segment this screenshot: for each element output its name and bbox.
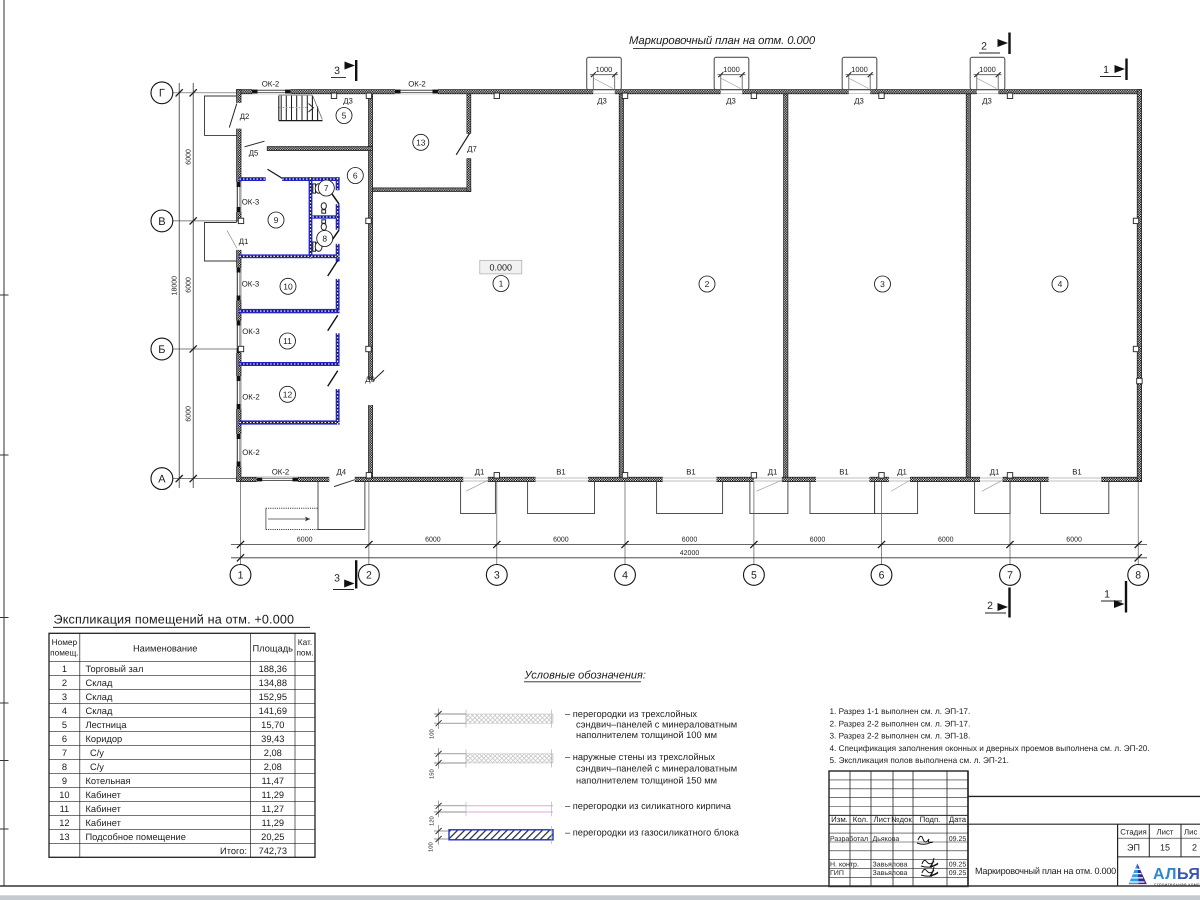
svg-text:1000: 1000	[596, 65, 613, 74]
svg-text:2,08: 2,08	[264, 748, 282, 758]
svg-text:5. Экспликация полов выполнена: 5. Экспликация полов выполнена см. л. ЭП…	[830, 756, 1009, 765]
svg-text:13: 13	[59, 832, 69, 842]
svg-text:Д3: Д3	[343, 97, 353, 106]
svg-text:9: 9	[274, 215, 279, 225]
svg-text:Кабинет: Кабинет	[86, 804, 122, 814]
svg-text:1. Разрез 1-1 выполнен см. л.: 1. Разрез 1-1 выполнен см. л. ЭП-17.	[830, 707, 971, 716]
svg-text:Изм.: Изм.	[831, 815, 848, 824]
svg-text:134,88: 134,88	[259, 678, 287, 688]
svg-text:Д3: Д3	[854, 97, 864, 106]
svg-text:141,69: 141,69	[259, 706, 287, 716]
svg-text:1: 1	[1104, 589, 1110, 601]
svg-text:100: 100	[428, 842, 435, 852]
svg-text:наполнителем толщиной 150 мм: наполнителем толщиной 150 мм	[576, 775, 717, 785]
svg-text:Разработал: Разработал	[830, 835, 868, 843]
svg-text:1000: 1000	[723, 65, 740, 74]
svg-text:6000: 6000	[1066, 537, 1082, 544]
svg-text:Завьялова: Завьялова	[873, 861, 908, 868]
svg-text:11,47: 11,47	[262, 776, 285, 786]
svg-text:– перегородки из газосиликатно: – перегородки из газосиликатного блока	[565, 828, 740, 838]
svg-text:6000: 6000	[810, 537, 826, 544]
svg-text:ОК-2: ОК-2	[272, 468, 290, 477]
svg-text:сэндвич–панелей с минераловатн: сэндвич–панелей с минераловатным	[576, 719, 737, 729]
svg-text:помещ.: помещ.	[50, 648, 79, 658]
svg-text:Торговый зал: Торговый зал	[86, 664, 144, 674]
svg-text:09.25: 09.25	[949, 836, 967, 843]
svg-text:– перегородки из силикатного к: – перегородки из силикатного кирпича	[565, 801, 732, 811]
svg-text:2: 2	[366, 570, 372, 582]
svg-text:ОК-3: ОК-3	[242, 280, 260, 289]
svg-text:1: 1	[238, 570, 244, 582]
svg-text:ГИП: ГИП	[830, 870, 844, 877]
svg-text:Кат.: Кат.	[298, 637, 312, 647]
svg-text:6: 6	[353, 171, 358, 181]
svg-text:09.25: 09.25	[949, 861, 967, 868]
svg-text:Б: Б	[158, 344, 165, 356]
svg-text:Котельная: Котельная	[86, 776, 131, 786]
svg-text:15,70: 15,70	[261, 720, 284, 730]
svg-text:Подсобное помещение: Подсобное помещение	[86, 832, 186, 842]
svg-text:100: 100	[429, 729, 436, 739]
svg-text:11,27: 11,27	[262, 804, 285, 814]
svg-text:39,43: 39,43	[261, 734, 284, 744]
svg-text:С/у: С/у	[90, 762, 104, 772]
svg-text:Д1: Д1	[239, 237, 249, 246]
svg-text:Номер: Номер	[52, 637, 78, 647]
svg-text:4: 4	[1058, 279, 1063, 289]
svg-text:6000: 6000	[297, 537, 313, 544]
svg-text:ОК-3: ОК-3	[242, 327, 260, 336]
svg-text:1: 1	[499, 279, 504, 289]
svg-text:Д2: Д2	[240, 112, 250, 121]
svg-text:2,08: 2,08	[264, 762, 282, 772]
svg-text:7: 7	[62, 748, 67, 758]
svg-text:наполнителем толщиной 100 мм: наполнителем толщиной 100 мм	[576, 730, 717, 740]
svg-text:4: 4	[622, 570, 628, 582]
svg-text:Д6: Д6	[365, 375, 375, 384]
svg-text:11: 11	[60, 804, 70, 814]
svg-text:Д1: Д1	[990, 467, 1000, 476]
svg-text:Склад: Склад	[86, 678, 113, 688]
svg-text:Стадия: Стадия	[1120, 828, 1147, 837]
svg-text:Подп.: Подп.	[920, 815, 941, 824]
svg-text:Склад: Склад	[86, 706, 113, 716]
svg-text:2: 2	[981, 41, 987, 53]
svg-text:Кол.: Кол.	[853, 815, 868, 824]
svg-text:Маркировочный план на отм. 0.0: Маркировочный план на отм. 0.000	[975, 866, 1116, 876]
svg-text:Д1: Д1	[475, 467, 485, 476]
svg-text:Коридор: Коридор	[86, 734, 123, 744]
svg-text:5: 5	[62, 720, 67, 730]
svg-text:Маркировочный план на отм. 0.0: Маркировочный план на отм. 0.000	[629, 35, 816, 47]
svg-text:5: 5	[751, 570, 757, 582]
svg-text:150: 150	[429, 769, 436, 779]
svg-text:ЭП: ЭП	[1127, 843, 1140, 853]
svg-text:Площадь: Площадь	[253, 644, 294, 654]
svg-text:АЛЬЯНС: АЛЬЯНС	[1153, 866, 1200, 883]
svg-text:10: 10	[59, 790, 69, 800]
svg-text:1000: 1000	[851, 65, 868, 74]
svg-text:ОК-2: ОК-2	[242, 448, 260, 457]
svg-text:Д3: Д3	[726, 97, 736, 106]
svg-text:ОК-2: ОК-2	[262, 80, 280, 89]
svg-text:6000: 6000	[186, 149, 193, 165]
svg-text:7: 7	[324, 183, 329, 193]
svg-text:В: В	[158, 216, 165, 228]
svg-text:6000: 6000	[553, 537, 569, 544]
svg-text:2: 2	[1192, 843, 1197, 853]
svg-text:– перегородки из трехслойных: – перегородки из трехслойных	[565, 709, 697, 719]
svg-text:ОК-2: ОК-2	[242, 392, 260, 401]
svg-text:11: 11	[283, 336, 292, 346]
svg-text:3: 3	[334, 573, 340, 585]
svg-text:Дьякова: Дьякова	[873, 836, 900, 843]
svg-text:Н. контр.: Н. контр.	[830, 861, 859, 868]
svg-text:5: 5	[342, 111, 347, 121]
svg-text:Лист: Лист	[1157, 828, 1174, 837]
svg-text:Кабинет: Кабинет	[86, 818, 122, 828]
svg-text:18000: 18000	[172, 276, 179, 296]
svg-text:ОК-3: ОК-3	[242, 198, 260, 207]
svg-text:3. Разрез 2-2 выполнен см. л.: 3. Разрез 2-2 выполнен см. л. ЭП-18.	[830, 732, 971, 741]
svg-text:сэндвич–панелей с минераловатн: сэндвич–панелей с минераловатным	[576, 764, 737, 774]
svg-text:Лис: Лис	[1184, 828, 1197, 837]
svg-text:Д5: Д5	[249, 149, 259, 158]
svg-text:1: 1	[1103, 64, 1109, 76]
svg-text:2. Разрез 2-2 выполнен см. л.: 2. Разрез 2-2 выполнен см. л. ЭП-17.	[830, 719, 971, 728]
svg-text:Лист: Лист	[874, 815, 891, 824]
svg-text:Д3: Д3	[597, 97, 607, 106]
svg-text:В1: В1	[556, 467, 566, 476]
svg-text:Завьялова: Завьялова	[873, 870, 908, 877]
svg-text:Условные обозначения:: Условные обозначения:	[524, 670, 646, 682]
svg-text:Наименование: Наименование	[133, 644, 197, 654]
svg-text:Итого:: Итого:	[220, 846, 247, 856]
svg-text:6000: 6000	[186, 277, 193, 293]
svg-text:9: 9	[62, 776, 67, 786]
svg-text:742,73: 742,73	[259, 846, 287, 856]
svg-text:11,29: 11,29	[262, 818, 285, 828]
svg-text:Лестница: Лестница	[86, 720, 128, 730]
svg-text:2: 2	[705, 279, 710, 289]
svg-text:4: 4	[62, 706, 67, 716]
svg-text:0.000: 0.000	[490, 262, 513, 272]
svg-text:42000: 42000	[680, 550, 700, 557]
svg-text:1000: 1000	[979, 65, 996, 74]
svg-text:1: 1	[62, 664, 67, 674]
svg-text:Д1: Д1	[897, 467, 907, 476]
svg-text:6000: 6000	[425, 537, 441, 544]
svg-text:12: 12	[283, 389, 293, 399]
svg-text:3: 3	[494, 570, 500, 582]
svg-text:3: 3	[334, 65, 340, 77]
svg-text:3: 3	[880, 279, 885, 289]
svg-text:А: А	[158, 474, 166, 486]
svg-text:10: 10	[283, 281, 293, 291]
svg-text:ОК-2: ОК-2	[408, 80, 426, 89]
svg-text:8: 8	[62, 762, 67, 772]
svg-text:15: 15	[1160, 843, 1170, 853]
svg-text:В1: В1	[1072, 467, 1082, 476]
svg-text:Г: Г	[159, 88, 165, 100]
svg-text:13: 13	[416, 137, 426, 147]
svg-text:7: 7	[1007, 570, 1013, 582]
svg-text:3: 3	[62, 692, 67, 702]
svg-text:Дата: Дата	[949, 815, 967, 824]
svg-text:2: 2	[62, 678, 67, 688]
svg-text:2: 2	[987, 600, 993, 612]
svg-text:188,36: 188,36	[259, 664, 287, 674]
svg-text:6000: 6000	[186, 406, 193, 422]
svg-text:6000: 6000	[938, 537, 954, 544]
svg-text:09.25: 09.25	[949, 870, 967, 877]
svg-text:Д1: Д1	[768, 467, 778, 476]
svg-text:Экспликация помещений на отм.: Экспликация помещений на отм. +0.000	[54, 613, 295, 627]
svg-text:8: 8	[322, 234, 327, 244]
svg-text:– наружные стены из трехслойны: – наружные стены из трехслойных	[565, 752, 715, 762]
svg-text:В1: В1	[839, 467, 849, 476]
svg-text:Д4: Д4	[336, 468, 346, 477]
svg-text:152,95: 152,95	[259, 692, 287, 702]
svg-text:6000: 6000	[682, 537, 698, 544]
svg-text:С/у: С/у	[90, 748, 104, 758]
svg-text:6: 6	[879, 570, 885, 582]
svg-text:В1: В1	[686, 467, 696, 476]
svg-text:4. Спецификация заполнения око: 4. Спецификация заполнения оконных и две…	[830, 744, 1150, 753]
svg-text:Д3: Д3	[982, 97, 992, 106]
svg-text:11,29: 11,29	[262, 790, 285, 800]
svg-text:№док.: №док.	[891, 815, 914, 824]
svg-text:Кабинет: Кабинет	[86, 790, 122, 800]
svg-text:6: 6	[62, 734, 67, 744]
svg-text:20,25: 20,25	[261, 832, 284, 842]
svg-text:пом.: пом.	[296, 648, 313, 658]
svg-text:12: 12	[59, 818, 69, 828]
svg-text:Д7: Д7	[467, 144, 477, 153]
svg-text:120: 120	[429, 816, 436, 826]
svg-text:Склад: Склад	[86, 692, 113, 702]
svg-text:8: 8	[1135, 570, 1141, 582]
